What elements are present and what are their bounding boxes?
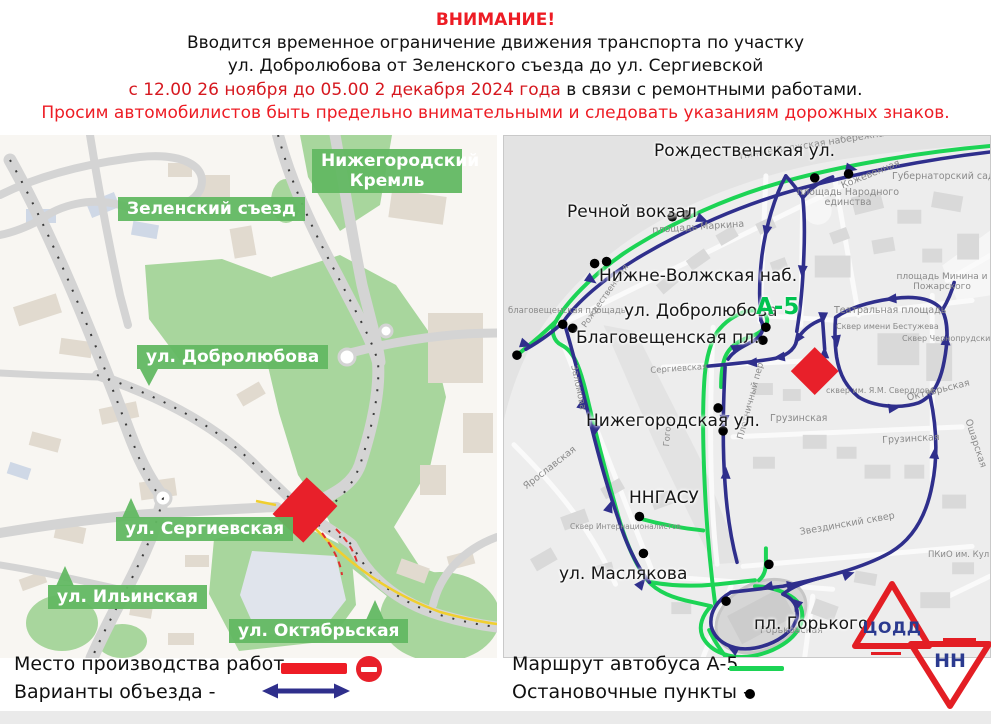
legend-stops-label: Остановочные пункты - bbox=[512, 681, 750, 703]
stop-dot-icon bbox=[745, 689, 755, 699]
stop-label-nizhegorodskaya: Нижегородская ул. bbox=[586, 411, 760, 431]
stop-label-maslyakova: ул. Маслякова bbox=[559, 564, 687, 584]
logo-small-mark bbox=[943, 638, 976, 641]
label-pointer bbox=[366, 600, 384, 620]
header-line-2: Вводится временное ограничение движения … bbox=[0, 32, 991, 54]
map-label-sergievskaya: ул. Сергиевская bbox=[116, 517, 293, 541]
minor-label: Сквер имени Бестужева bbox=[836, 322, 939, 332]
map-label-kremlin: Нижегородский Кремль bbox=[312, 149, 462, 193]
stop-label-rechnoy-vokzal: Речной вокзал bbox=[567, 202, 697, 222]
codd-nn-logo: ЦОДД НН bbox=[843, 576, 991, 712]
minor-label: площадь Народного единства bbox=[796, 188, 900, 208]
header-line-4: с 12.00 26 ноября до 05.00 2 декабря 202… bbox=[0, 79, 991, 101]
legend-work-site-label: Место производства работ - bbox=[14, 653, 297, 675]
minor-label: Грузинская bbox=[770, 414, 827, 424]
bottom-strip bbox=[0, 711, 991, 724]
header-line-3: ул. Добролюбова от Зеленского съезда до … bbox=[0, 55, 991, 77]
logo-small-mark bbox=[871, 652, 901, 655]
legend-bus-route-label: Маршрут автобуса А-5 bbox=[512, 653, 738, 675]
minor-label: Театральная площадь bbox=[834, 306, 946, 316]
minor-label: ПКиО им. Кул bbox=[928, 550, 989, 560]
stop-label-nngasu: ННГАСУ bbox=[629, 488, 699, 508]
logo-text-codd: ЦОДД bbox=[857, 618, 927, 637]
map-label-dobrolyubova: ул. Добролюбова bbox=[137, 345, 328, 369]
minor-label: Сквер Интернационалистов bbox=[570, 522, 681, 532]
logo-triangles bbox=[843, 576, 991, 712]
header-line-5: Просим автомобилистов быть предельно вни… bbox=[0, 102, 991, 124]
work-site-bar-icon bbox=[281, 663, 347, 674]
no-entry-icon bbox=[356, 656, 382, 682]
minor-label: площадь Минина и Пожарского bbox=[894, 272, 990, 292]
stop-label-nizhne-volzhskaya: Нижне-Волжская наб. bbox=[599, 266, 797, 286]
route-badge-a5: А-5 bbox=[756, 294, 799, 320]
bus-route-line-icon bbox=[729, 666, 784, 671]
left-map: Нижегородский Кремль Зеленский съезд ул.… bbox=[0, 135, 497, 658]
label-pointer bbox=[122, 498, 140, 518]
label-pointer bbox=[56, 566, 74, 586]
logo-text-nn: НН bbox=[931, 650, 969, 672]
detour-arrow-icon bbox=[262, 682, 350, 700]
stop-label-dobrolyubova: ул. Добролюбова bbox=[624, 301, 778, 321]
header-line-4-tail: в связи с ремонтными работами. bbox=[561, 80, 863, 100]
stop-label-rozhdestvenskaya: Рождественская ул. bbox=[654, 141, 835, 161]
legend-detours-label: Варианты объезда - bbox=[14, 681, 216, 703]
page-title: ВНИМАНИЕ! bbox=[0, 9, 991, 31]
map-label-ilinskaya: ул. Ильинская bbox=[48, 585, 207, 609]
minor-label: благовещенская площадь bbox=[508, 306, 626, 316]
header-dates: с 12.00 26 ноября до 05.00 2 декабря 202… bbox=[128, 80, 560, 100]
stop-label-blagoveshchenskaya: Благовещенская пл. bbox=[576, 328, 759, 348]
minor-label: Губернаторский сад bbox=[892, 172, 991, 182]
map-label-zelensky-sezd: Зеленский съезд bbox=[118, 197, 305, 221]
announcement-poster: ВНИМАНИЕ! Вводится временное ограничение… bbox=[0, 0, 991, 724]
minor-label: Сквер Чернопрудский bbox=[902, 334, 991, 344]
map-label-oktyabrskaya: ул. Октябрьская bbox=[229, 619, 408, 643]
label-pointer bbox=[140, 369, 158, 386]
